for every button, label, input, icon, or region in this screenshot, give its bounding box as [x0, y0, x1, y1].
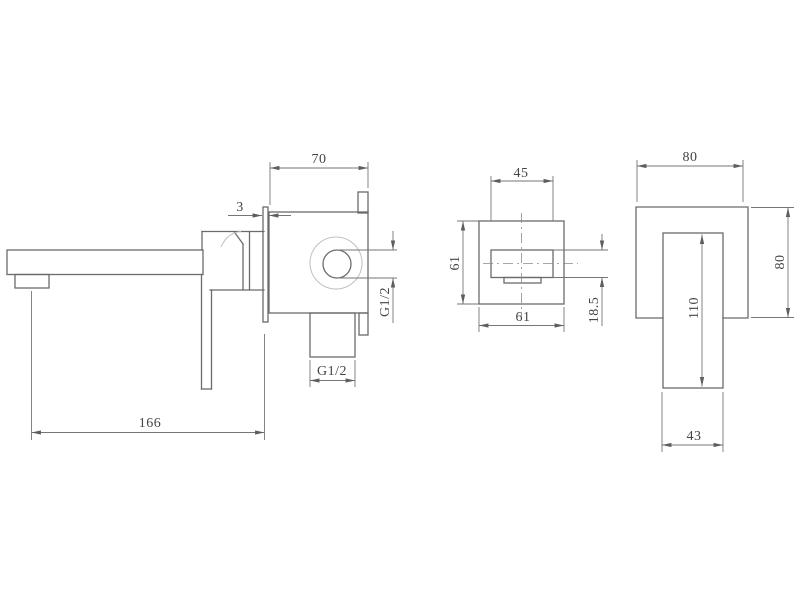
dim-label-45: 45 [514, 166, 529, 181]
dim-label-18-5: 18.5 [587, 297, 602, 324]
dim-label-61-bottom: 61 [516, 310, 531, 325]
outlet-port-bottom [310, 313, 355, 357]
cartridge-circle [310, 237, 362, 289]
dim-plate-width-80: 80 [637, 150, 743, 202]
valve-body [269, 212, 368, 313]
dim-label-3: 3 [236, 200, 244, 215]
dim-label-70: 70 [312, 152, 327, 167]
technical-drawing-canvas: 70 3 G1/2 G1/2 166 [0, 0, 801, 600]
dim-handle-offset-18-5: 18.5 [553, 234, 608, 326]
dim-label-61-left: 61 [448, 256, 463, 271]
dim-outlet-thread: G1/2 [310, 360, 355, 387]
dim-spout-reach-166: 166 [32, 291, 265, 440]
handle-chamfer [234, 232, 243, 245]
trim-plate-front-view: 45 61 61 18.5 [448, 166, 608, 332]
mounting-tab-top [358, 192, 368, 213]
dim-inlet-thread: G1/2 [337, 231, 397, 323]
dim-label-80-right: 80 [773, 255, 788, 270]
dim-spout-length-110: 110 [687, 235, 702, 387]
mounting-tab-bottom [359, 313, 368, 335]
dim-body-width-70: 70 [270, 152, 368, 205]
dim-label-g12-outlet: G1/2 [317, 364, 347, 379]
spout-outlet [15, 275, 49, 289]
inlet-circle [323, 250, 351, 278]
handle-base-step [504, 278, 541, 284]
dim-spout-width-43: 43 [662, 392, 723, 452]
dim-plate-width-61: 61 [479, 307, 564, 332]
spout-front-view: 80 80 110 43 [636, 150, 794, 452]
dim-label-110: 110 [687, 297, 702, 319]
dim-label-166: 166 [139, 416, 162, 431]
dim-plate-height-80: 80 [751, 208, 794, 318]
side-view: 70 3 G1/2 G1/2 166 [7, 152, 397, 440]
faucet-technical-drawing: 70 3 G1/2 G1/2 166 [0, 0, 801, 600]
spout-side-outline [7, 250, 203, 275]
dim-plate-height-61: 61 [448, 221, 479, 304]
dim-label-43: 43 [687, 429, 702, 444]
wall-plate-side [263, 207, 268, 322]
dim-handle-width-45: 45 [491, 166, 553, 221]
dim-plate-thickness-3: 3 [228, 200, 291, 216]
dim-label-g12-inlet: G1/2 [378, 287, 393, 317]
handle-rounding-arc [221, 232, 241, 248]
dim-label-80-top: 80 [683, 150, 698, 165]
